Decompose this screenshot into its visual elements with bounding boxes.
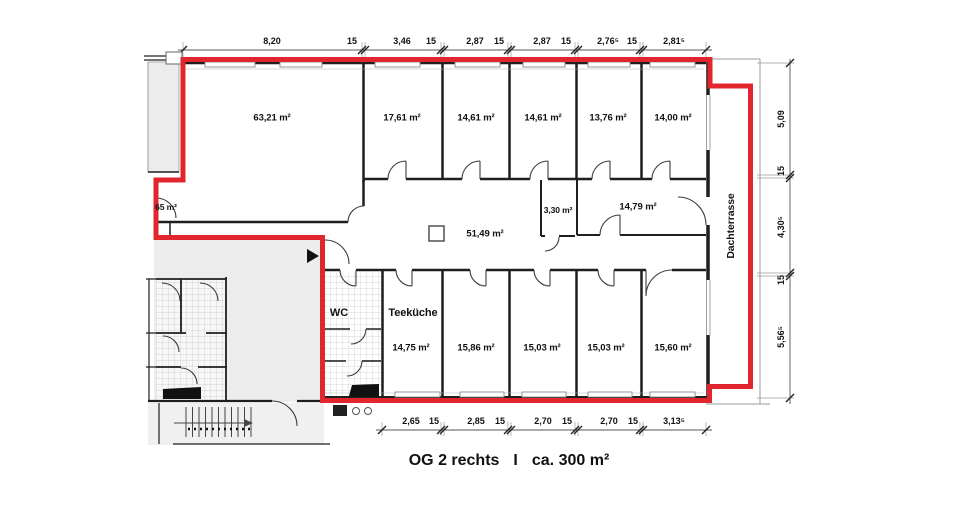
dim-bottom-7: 15 [628,416,638,426]
room-label-office-top-3: 14,61 m² [524,113,561,124]
plan-title-name: OG 2 rechts [409,452,500,469]
room-label-neighbor-partial: 65 m² [155,202,177,212]
dim-top-0: 8,20 [263,36,281,46]
dim-right-1: 15 [776,166,786,176]
dim-top-3: 15 [426,36,436,46]
room-label-corridor: 51,49 m² [466,229,503,240]
floor-plan-page: 63,21 m² 17,61 m² 14,61 m² 14,61 m² 13,7… [0,0,960,505]
dim-right-3: 15 [776,275,786,285]
dim-top-4: 2,87 [466,36,484,46]
floor-plan-drawing [0,0,960,505]
dim-bottom-3: 15 [495,416,505,426]
room-label-office-bottom-3: 15,03 m² [587,343,624,354]
dim-top-9: 15 [627,36,637,46]
plan-title-separator: I [513,452,517,469]
dim-bottom-6: 2,70 [600,416,618,426]
dim-top-7: 15 [561,36,571,46]
room-label-kitchen: Teeküche [388,307,437,319]
dim-top-1: 15 [347,36,357,46]
dim-bottom-8: 3,13⁵ [663,416,685,426]
column-symbol [429,226,444,241]
room-label-terrace: Dachterrasse [725,193,737,258]
room-label-office-top-5: 14,00 m² [654,113,691,124]
plan-title-area: ca. 300 m² [532,452,609,469]
room-label-office-bottom-2: 15,03 m² [523,343,560,354]
dim-top-6: 2,87 [533,36,551,46]
room-label-large-office: 63,21 m² [253,113,290,124]
room-label-wc: WC [330,307,348,319]
dim-top-2: 3,46 [393,36,411,46]
dim-bottom-5: 15 [562,416,572,426]
room-label-office-mid: 14,79 m² [619,202,656,213]
dim-bottom-2: 2,85 [467,416,485,426]
dim-top-10: 2,81⁵ [663,36,685,46]
room-label-office-bottom-4: 15,60 m² [654,343,691,354]
dim-top-8: 2,76⁵ [597,36,619,46]
dim-bottom-0: 2,65 [402,416,420,426]
room-label-office-top-4: 13,76 m² [589,113,626,124]
room-label-office-top-1: 17,61 m² [383,113,420,124]
room-label-office-bottom-1: 15,86 m² [457,343,494,354]
dim-bottom-1: 15 [429,416,439,426]
dim-top-5: 15 [494,36,504,46]
room-label-storage: 3,30 m² [544,205,573,215]
dim-right-2: 4,30⁵ [776,216,786,238]
dim-right-0: 5,09 [776,110,786,128]
plan-title: OG 2 rechtsIca. 300 m² [409,452,610,470]
dim-right-4: 5,56⁵ [776,326,786,348]
dim-bottom-4: 2,70 [534,416,552,426]
room-label-office-top-2: 14,61 m² [457,113,494,124]
room-label-kitchen-area: 14,75 m² [392,343,429,354]
